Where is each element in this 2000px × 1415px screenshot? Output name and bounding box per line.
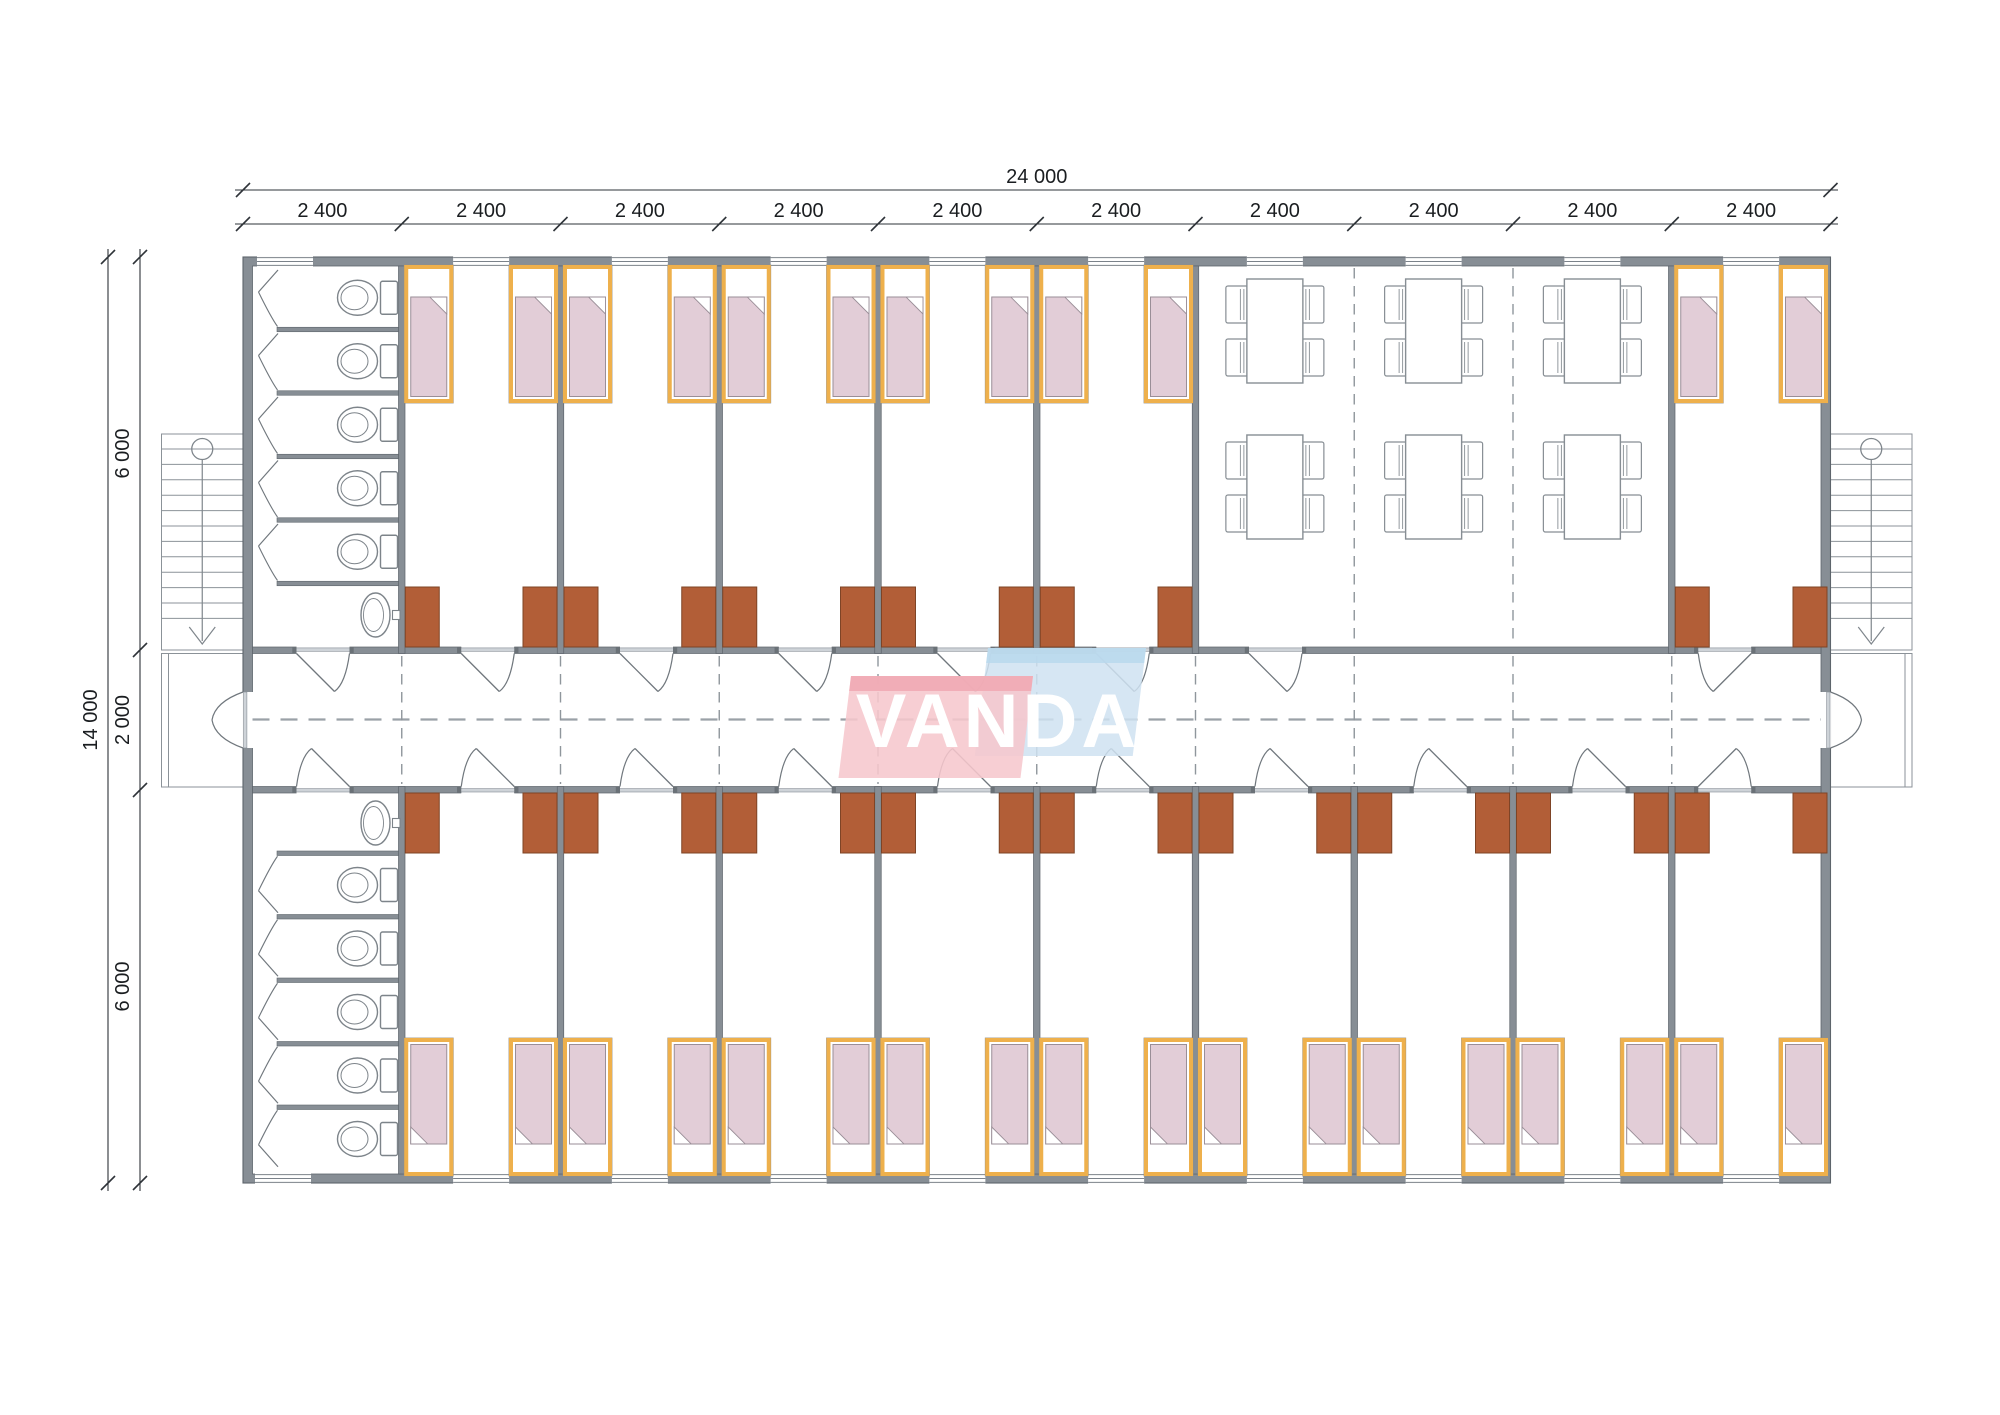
door-jamb (1467, 787, 1471, 794)
wardrobe (523, 587, 557, 647)
chair (1226, 339, 1248, 376)
door-threshold (1412, 789, 1469, 792)
door-jamb (1751, 647, 1755, 654)
bed-blanket (887, 297, 923, 397)
dimension-label: 2 000 (112, 695, 134, 745)
bed-blanket (1363, 1045, 1399, 1145)
bed-blanket (411, 1045, 447, 1145)
sink-basin (361, 593, 390, 637)
door-threshold (1696, 648, 1753, 651)
bed-blanket (516, 1045, 552, 1145)
dimension-label: 14 000 (80, 689, 102, 750)
bed-blanket (1046, 1045, 1082, 1145)
door-jamb (775, 787, 779, 794)
chair (1619, 286, 1641, 323)
toilet-tank (381, 408, 398, 441)
bed-blanket (1786, 297, 1822, 397)
wardrobe (1040, 587, 1074, 647)
door-threshold (1827, 692, 1830, 748)
bed-blanket (674, 297, 710, 397)
dimension-label: 6 000 (112, 428, 134, 478)
toilet-tank (381, 1123, 398, 1156)
dimension-label: 2 400 (1250, 200, 1300, 222)
wardrobe (682, 793, 716, 853)
bed (985, 1038, 1034, 1176)
bed (1303, 1038, 1352, 1176)
chair (1619, 339, 1641, 376)
door-jamb (673, 787, 677, 794)
bed-blanket (1786, 1045, 1822, 1145)
chair (1543, 442, 1565, 479)
bed (1144, 265, 1193, 403)
bed-blanket (570, 297, 606, 397)
wardrobe (1634, 793, 1668, 853)
chair (1385, 339, 1407, 376)
door-jamb (991, 787, 995, 794)
right-staircase (1831, 434, 1913, 650)
toilet-stall-divider (277, 851, 399, 856)
dimension-label: 2 400 (1726, 200, 1776, 222)
bed-blanket (411, 297, 447, 397)
wardrobe (841, 587, 875, 647)
toilet (338, 471, 398, 506)
bed (1674, 265, 1723, 403)
wardrobe (1517, 793, 1551, 853)
bed (1779, 1038, 1828, 1176)
toilet-tank (381, 281, 398, 314)
toilet-stall-divider (277, 1105, 399, 1110)
door-jamb (514, 647, 518, 654)
bed (881, 265, 930, 403)
bed (668, 265, 717, 403)
door-jamb (933, 647, 937, 654)
wardrobe (564, 587, 598, 647)
dimension-label: 24 000 (1006, 166, 1067, 188)
toilet-bowl (338, 534, 378, 569)
left-landing (162, 654, 244, 788)
dining-table (1564, 279, 1620, 383)
wardrobe (1158, 587, 1192, 647)
chair (1619, 442, 1641, 479)
toilet-tank (381, 535, 398, 568)
bed-blanket (1468, 1045, 1504, 1145)
bed-blanket (1627, 1045, 1663, 1145)
door-jamb (350, 647, 354, 654)
dining-table (1564, 435, 1620, 539)
dimension-label: 2 400 (1567, 200, 1617, 222)
door-jamb (1092, 787, 1096, 794)
door-jamb (616, 787, 620, 794)
left-staircase (162, 434, 244, 650)
toilet-tank (381, 869, 398, 902)
door-jamb (457, 787, 461, 794)
chair (1461, 286, 1483, 323)
toilet-tank (381, 345, 398, 378)
bed (1039, 265, 1088, 403)
door-threshold (1094, 789, 1151, 792)
toilet-stall-divider (277, 327, 399, 332)
bed (509, 265, 558, 403)
bed (668, 1038, 717, 1176)
floor-plan-canvas: 24 0002 4002 4002 4002 4002 4002 4002 40… (0, 0, 2000, 1415)
bed-blanket (516, 297, 552, 397)
toilet (338, 344, 398, 379)
door-threshold (936, 648, 993, 651)
bed (1462, 1038, 1511, 1176)
door-jamb (514, 787, 518, 794)
bed-blanket (992, 297, 1028, 397)
toilet-bowl (338, 1058, 378, 1093)
toilet (338, 534, 398, 569)
chair (1302, 495, 1324, 532)
toilet (338, 1058, 398, 1093)
toilet (338, 931, 398, 966)
door-jamb (292, 787, 296, 794)
dining-table (1247, 435, 1303, 539)
toilet-bowl (338, 931, 378, 966)
wardrobe (1317, 793, 1351, 853)
bed-blanket (1309, 1045, 1345, 1145)
chair (1302, 442, 1324, 479)
chair (1543, 495, 1565, 532)
toilet-tank (381, 932, 398, 965)
wardrobe (1476, 793, 1510, 853)
bed (827, 265, 876, 403)
door-threshold (936, 789, 993, 792)
door-jamb (832, 787, 836, 794)
chair (1461, 495, 1483, 532)
chair (1302, 339, 1324, 376)
door-jamb (292, 647, 296, 654)
toilet-stall-divider (277, 391, 399, 396)
bed (827, 1038, 876, 1176)
door-jamb (1751, 787, 1755, 794)
wardrobe (723, 793, 757, 853)
bed (1039, 1038, 1088, 1176)
dimension-label: 6 000 (112, 961, 134, 1011)
toilet (338, 995, 398, 1030)
bed-blanket (1522, 1045, 1558, 1145)
wardrobe (1675, 793, 1709, 853)
chair (1226, 495, 1248, 532)
door-jamb (1694, 647, 1698, 654)
bed-blanket (1046, 297, 1082, 397)
chair (1461, 339, 1483, 376)
bed-blanket (1681, 1045, 1717, 1145)
dining-table (1406, 435, 1462, 539)
toilet (338, 868, 398, 903)
door-jamb (1245, 647, 1249, 654)
door-jamb (1251, 787, 1255, 794)
chair (1226, 442, 1248, 479)
bed-blanket (833, 1045, 869, 1145)
wardrobe (1158, 793, 1192, 853)
door-jamb (1694, 787, 1698, 794)
toilet (338, 280, 398, 315)
bed-blanket (1151, 1045, 1187, 1145)
toilet-bowl (338, 344, 378, 379)
door-jamb (1568, 787, 1572, 794)
toilet-bowl (338, 407, 378, 442)
bed (1516, 1038, 1565, 1176)
door-threshold (1571, 789, 1628, 792)
chair (1619, 495, 1641, 532)
bed (1198, 1038, 1247, 1176)
door-jamb (832, 647, 836, 654)
bed-blanket (728, 1045, 764, 1145)
bed-blanket (1681, 297, 1717, 397)
door-jamb (616, 647, 620, 654)
door-threshold (1247, 648, 1304, 651)
sink-basin (361, 801, 390, 845)
door-threshold (295, 648, 352, 651)
bed-blanket (833, 297, 869, 397)
toilet-stall-divider (277, 978, 399, 983)
wardrobe (882, 587, 916, 647)
bed (1357, 1038, 1406, 1176)
bed (881, 1038, 930, 1176)
door-jamb (1149, 787, 1153, 794)
door-jamb (933, 787, 937, 794)
door-threshold (295, 789, 352, 792)
bed-blanket (1151, 297, 1187, 397)
bed (722, 265, 771, 403)
toilet (338, 407, 398, 442)
dimension-label: 2 400 (932, 200, 982, 222)
chair (1385, 286, 1407, 323)
dimension-label: 2 400 (1091, 200, 1141, 222)
wardrobe (523, 793, 557, 853)
door-jamb (673, 647, 677, 654)
toilet (338, 1122, 398, 1157)
chair (1543, 286, 1565, 323)
door-jamb (1626, 787, 1630, 794)
bed (1674, 1038, 1723, 1176)
door-threshold (777, 648, 834, 651)
logo-text: VANDA (856, 679, 1141, 764)
door-threshold (1253, 789, 1310, 792)
wardrobe (999, 793, 1033, 853)
door-jamb (457, 647, 461, 654)
wardrobe (564, 793, 598, 853)
bed-blanket (887, 1045, 923, 1145)
bed (404, 265, 453, 403)
chair (1543, 339, 1565, 376)
bed (985, 265, 1034, 403)
dimension-label: 2 400 (456, 200, 506, 222)
dimension-label: 2 400 (774, 200, 824, 222)
wardrobe (1675, 587, 1709, 647)
bed-blanket (570, 1045, 606, 1145)
wardrobe (405, 793, 439, 853)
logo-block-blue-top (986, 648, 1146, 663)
bed (563, 1038, 612, 1176)
right-landing (1831, 654, 1913, 788)
chair (1385, 495, 1407, 532)
chair (1385, 442, 1407, 479)
door-threshold (459, 648, 516, 651)
toilet-stall-divider (277, 518, 399, 523)
door-jamb (1410, 787, 1414, 794)
bed (1779, 265, 1828, 403)
floor-plan-svg: 24 0002 4002 4002 4002 4002 4002 4002 40… (0, 0, 2000, 1415)
bed (509, 1038, 558, 1176)
door-jamb (1149, 647, 1153, 654)
dining-table (1406, 279, 1462, 383)
toilet-bowl (338, 471, 378, 506)
toilet-bowl (338, 868, 378, 903)
door-threshold (244, 692, 247, 748)
toilet-stall-divider (277, 581, 399, 586)
door-jamb (775, 647, 779, 654)
sink-tap (393, 819, 401, 828)
toilet-stall-divider (277, 1042, 399, 1047)
dimension-label: 2 400 (297, 200, 347, 222)
bed-blanket (674, 1045, 710, 1145)
wardrobe (405, 587, 439, 647)
dimension-label: 2 400 (615, 200, 665, 222)
chair (1226, 286, 1248, 323)
sink-tap (393, 611, 401, 620)
wardrobe (1793, 587, 1827, 647)
door-threshold (618, 789, 675, 792)
chair (1461, 442, 1483, 479)
door-jamb (1302, 647, 1306, 654)
toilet-bowl (338, 995, 378, 1030)
bed-blanket (1205, 1045, 1241, 1145)
wardrobe (723, 587, 757, 647)
bed (722, 1038, 771, 1176)
toilet-tank (381, 1059, 398, 1092)
wardrobe (1793, 793, 1827, 853)
wardrobe (841, 793, 875, 853)
door-threshold (777, 789, 834, 792)
bed (404, 1038, 453, 1176)
door-jamb (350, 787, 354, 794)
door-threshold (459, 789, 516, 792)
door-threshold (1696, 789, 1753, 792)
bed-blanket (728, 297, 764, 397)
wardrobe (1358, 793, 1392, 853)
toilet-tank (381, 996, 398, 1029)
dining-table (1247, 279, 1303, 383)
wardrobe (882, 793, 916, 853)
wardrobe (682, 587, 716, 647)
bed-blanket (992, 1045, 1028, 1145)
bed (1144, 1038, 1193, 1176)
wardrobe (999, 587, 1033, 647)
door-threshold (618, 648, 675, 651)
dimension-label: 2 400 (1409, 200, 1459, 222)
bed (563, 265, 612, 403)
door-jamb (1308, 787, 1312, 794)
wardrobe (1199, 793, 1233, 853)
toilet-tank (381, 472, 398, 505)
toilet-stall-divider (277, 915, 399, 920)
bed (1620, 1038, 1669, 1176)
toilet-bowl (338, 1122, 378, 1157)
wardrobe (1040, 793, 1074, 853)
toilet-stall-divider (277, 454, 399, 459)
chair (1302, 286, 1324, 323)
toilet-bowl (338, 280, 378, 315)
